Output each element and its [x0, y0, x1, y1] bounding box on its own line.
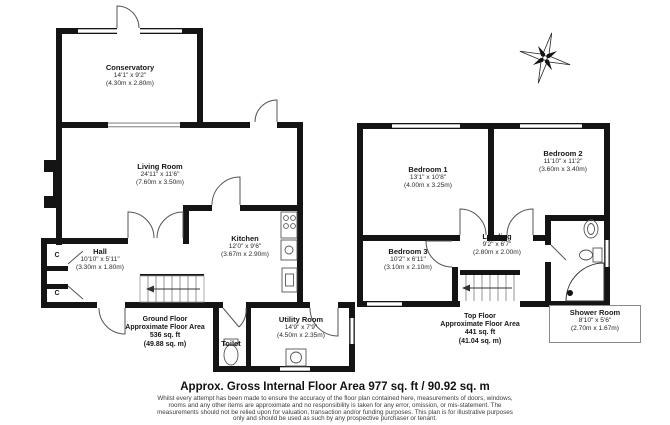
bedroom1-label: Bedroom 1 13'1" x 10'8" (4.00m x 3.25m)	[404, 166, 452, 190]
ground-floor-area-label: Ground Floor Approximate Floor Area 536 …	[125, 316, 204, 349]
room-size-imperial: 24'11" x 11'6"	[136, 171, 184, 179]
kitchen-label: Kitchen 12'0" x 9'6" (3.67m x 2.90m)	[221, 235, 269, 259]
cupboard-label-2: C	[54, 290, 59, 297]
total-area-title: Approx. Gross Internal Floor Area 977 sq…	[0, 381, 670, 393]
room-name: Living Room	[136, 163, 184, 171]
floorplan-canvas	[0, 0, 670, 425]
cupboard-label-1: C	[54, 252, 59, 259]
kitchen-fixtures	[281, 212, 297, 292]
floor-area-sqm: (49.88 sq. m)	[125, 341, 204, 349]
living-room-door-arc	[255, 100, 277, 122]
room-size-imperial: 10'2" x 6'11"	[384, 256, 432, 264]
fireplace-recess	[44, 172, 53, 196]
floor-area-caption: Approximate Floor Area	[440, 321, 519, 329]
room-size-imperial: 13'1" x 10'8"	[404, 174, 452, 182]
floor-name: Top Floor	[440, 313, 519, 321]
room-size-imperial: 14'9" x 7'9"	[277, 324, 325, 332]
bedroom2-label: Bedroom 2 11'10" x 11'2" (3.60m x 3.40m)	[539, 150, 587, 174]
room-name: Conservatory	[106, 64, 154, 72]
floor-area-sqft: 536 sq. ft	[125, 332, 204, 340]
toilet-label: Toilet	[221, 340, 240, 348]
room-size-metric: (3.60m x 3.40m)	[539, 166, 587, 174]
room-size-imperial: 11'10" x 11'2"	[539, 158, 587, 166]
kitchen-door-arc	[212, 177, 240, 205]
disclaimer-line: only and should be used as such by any p…	[0, 416, 670, 423]
room-size-imperial: 12'0" x 9'6"	[221, 243, 269, 251]
room-name: Toilet	[221, 340, 240, 348]
room-name: Shower Room	[550, 309, 640, 317]
hall-door-arc-left	[128, 212, 154, 238]
room-size-metric: (4.00m x 3.25m)	[404, 182, 452, 190]
room-name: Bedroom 3	[384, 248, 432, 256]
washer-fixture	[286, 349, 306, 366]
room-size-imperial: 14'1" x 9'2"	[106, 72, 154, 80]
room-name: Hall	[76, 248, 124, 256]
conservatory-door-arc	[117, 6, 139, 28]
top-floor-area-label: Top Floor Approximate Floor Area 441 sq.…	[440, 313, 519, 346]
room-name: Utility Room	[277, 316, 325, 324]
top-floor-stairs	[462, 275, 514, 301]
room-size-metric: (7.60m x 3.50m)	[136, 179, 184, 187]
room-size-metric: (4.50m x 2.35m)	[277, 332, 325, 340]
room-size-metric: (3.30m x 1.80m)	[76, 264, 124, 272]
room-size-metric: (2.80m x 2.00m)	[473, 249, 521, 257]
room-size-metric: (3.10m x 2.10m)	[384, 264, 432, 272]
room-size-imperial: 10'10" x 5'11"	[76, 256, 124, 264]
room-name: Bedroom 2	[539, 150, 587, 158]
shower-room-label: Shower Room 8'10" x 5'6" (2.70m x 1.67m)	[549, 305, 641, 343]
room-name: Landing	[473, 233, 521, 241]
floorplan-page: Conservatory 14'1" x 9'2" (4.30m x 2.80m…	[0, 0, 670, 425]
toilet-door	[223, 308, 246, 327]
shower-room-door	[551, 245, 566, 260]
living-room-label: Living Room 24'11" x 11'6" (7.60m x 3.50…	[136, 163, 184, 187]
landing-label: Landing 9'2" x 6'7" (2.80m x 2.00m)	[473, 233, 521, 257]
wc-fixture	[580, 248, 603, 262]
compass-rose-icon	[513, 26, 577, 90]
room-name: Bedroom 1	[404, 166, 452, 174]
room-size-imperial: 9'2" x 6'7"	[473, 241, 521, 249]
room-size-metric: (2.70m x 1.67m)	[550, 325, 640, 333]
corner-shower-fixture	[566, 263, 604, 301]
bedroom3-label: Bedroom 3 10'2" x 6'11" (3.10m x 2.10m)	[384, 248, 432, 272]
front-door-arc	[99, 308, 125, 334]
hall-label: Hall 10'10" x 5'11" (3.30m x 1.80m)	[76, 248, 124, 272]
cupboard-door-2	[68, 286, 83, 299]
utility-room-label: Utility Room 14'9" x 7'9" (4.50m x 2.35m…	[277, 316, 325, 340]
cooker-fixture	[282, 268, 297, 292]
disclaimer-text: Whilst every attempt has been made to en…	[0, 396, 670, 423]
room-size-imperial: 8'10" x 5'6"	[550, 317, 640, 325]
floor-area-caption: Approximate Floor Area	[125, 324, 204, 332]
room-size-metric: (3.67m x 2.90m)	[221, 251, 269, 259]
stairs-arrow-icon	[146, 286, 154, 293]
floor-area-sqft: 441 sq. ft	[440, 329, 519, 337]
conservatory-label: Conservatory 14'1" x 9'2" (4.30m x 2.80m…	[106, 64, 154, 88]
washbasin-fixture	[584, 220, 598, 238]
floor-area-sqm: (41.04 sq. m)	[440, 338, 519, 346]
hall-door-arc-right	[157, 212, 183, 238]
ground-floor-stairs	[140, 276, 204, 302]
floor-name: Ground Floor	[125, 316, 204, 324]
room-size-metric: (4.30m x 2.80m)	[106, 80, 154, 88]
sink-fixture	[281, 240, 297, 260]
room-name: Kitchen	[221, 235, 269, 243]
shower-room-fixtures	[566, 220, 604, 301]
